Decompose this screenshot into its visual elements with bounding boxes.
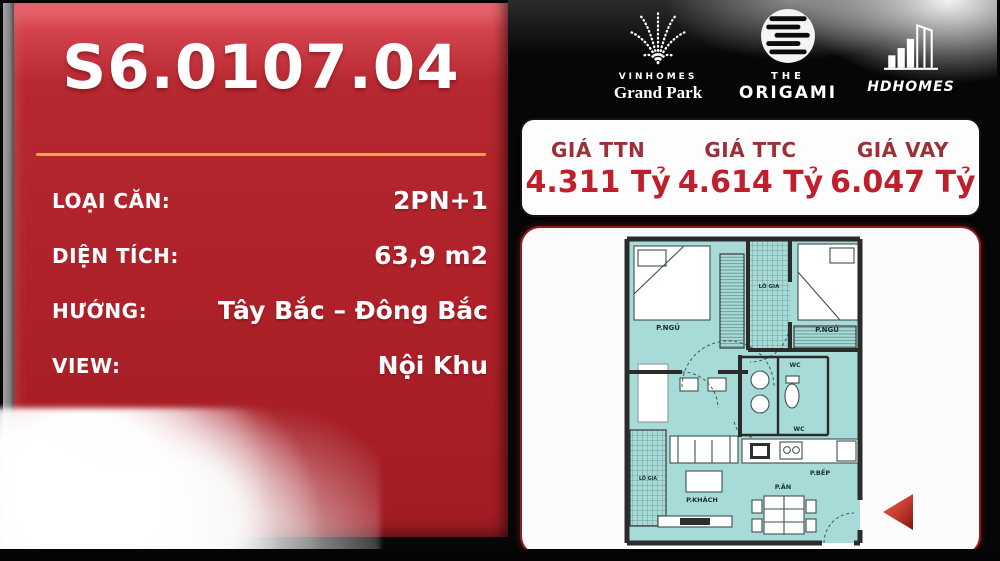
label-wc-upper: WC <box>789 362 801 369</box>
price-bar: GIÁ TTN 4.311 Tỷ GIÁ TTC 4.614 Tỷ GIÁ VA… <box>520 118 981 217</box>
hdhomes-building-icon <box>882 20 940 72</box>
the-origami-logo: THE ORIGAMI <box>733 8 843 103</box>
origami-the-text: THE <box>733 71 843 82</box>
unit-type-value: 2PN+1 <box>393 186 488 215</box>
direction-value: Tây Bắc – Đông Bắc <box>218 296 488 325</box>
vinhomes-grand-park-logo: VINHOMES Grand Park <box>596 10 720 103</box>
area-value: 63,9 m2 <box>374 241 488 270</box>
vinhomes-tree-icon <box>627 10 689 66</box>
unit-info-panel: S6.0107.04 LOẠI CĂN: 2PN+1 DIỆN TÍCH: 63… <box>14 3 508 537</box>
price-vay-label: GIÁ VAY <box>857 138 949 162</box>
spec-row-view: VIEW: Nội Khu <box>52 338 488 393</box>
direction-label: HƯỚNG: <box>52 299 147 323</box>
spec-row-direction: HƯỚNG: Tây Bắc – Đông Bắc <box>52 283 488 338</box>
label-bedroom-right: P.NGỦ <box>815 324 839 334</box>
vinhomes-logo-text: VINHOMES <box>596 72 720 82</box>
view-value: Nội Khu <box>378 351 488 380</box>
price-cell-ttn: GIÁ TTN 4.311 Tỷ <box>522 120 674 215</box>
left-edge-bar <box>3 3 14 557</box>
price-ttn-label: GIÁ TTN <box>551 138 645 162</box>
label-bedroom-left: P.NGỦ <box>656 322 680 332</box>
listing-card: S6.0107.04 LOẠI CĂN: 2PN+1 DIỆN TÍCH: 63… <box>0 0 1000 561</box>
view-label: VIEW: <box>52 354 121 378</box>
label-wc-lower: WC <box>793 426 805 433</box>
label-kitchen: P.BẾP <box>810 467 830 477</box>
spec-rows: LOẠI CĂN: 2PN+1 DIỆN TÍCH: 63,9 m2 HƯỚNG… <box>52 173 488 393</box>
grand-park-logo-text: Grand Park <box>596 83 720 103</box>
hdhomes-logo: HDHOMES <box>856 20 966 95</box>
label-loggia-bottom: LÔ GIA <box>639 475 657 482</box>
label-dining: P.ĂN <box>775 482 792 491</box>
area-label: DIỆN TÍCH: <box>52 244 179 268</box>
price-ttn-value: 4.311 Tỷ <box>525 165 670 200</box>
unit-type-label: LOẠI CĂN: <box>52 189 170 213</box>
bottom-frame <box>0 549 1000 561</box>
origami-name-text: ORIGAMI <box>733 83 843 103</box>
label-living: P.KHÁCH <box>686 495 718 504</box>
spec-row-unit-type: LOẠI CĂN: 2PN+1 <box>52 173 488 228</box>
price-cell-ttc: GIÁ TTC 4.614 Tỷ <box>674 120 826 215</box>
label-loggia-top: LÔ GIA <box>759 283 780 290</box>
floor-plan-drawing: P.NGỦ P.NGỦ LÔ GIA WC WC P.BẾP P.ĂN P.KH… <box>622 230 864 548</box>
origami-circle-icon <box>760 8 816 64</box>
price-ttc-label: GIÁ TTC <box>704 138 796 162</box>
floor-plan-panel: P.NGỦ P.NGỦ LÔ GIA WC WC P.BẾP P.ĂN P.KH… <box>520 226 981 556</box>
unit-code: S6.0107.04 <box>14 37 508 98</box>
price-cell-vay: GIÁ VAY 6.047 Tỷ <box>827 120 979 215</box>
hdhomes-name-text: HDHOMES <box>856 79 966 95</box>
spec-row-area: DIỆN TÍCH: 63,9 m2 <box>52 228 488 283</box>
back-arrow-icon[interactable] <box>881 492 915 532</box>
price-ttc-value: 4.614 Tỷ <box>678 165 823 200</box>
gold-divider <box>36 153 486 156</box>
price-vay-value: 6.047 Tỷ <box>830 165 975 200</box>
